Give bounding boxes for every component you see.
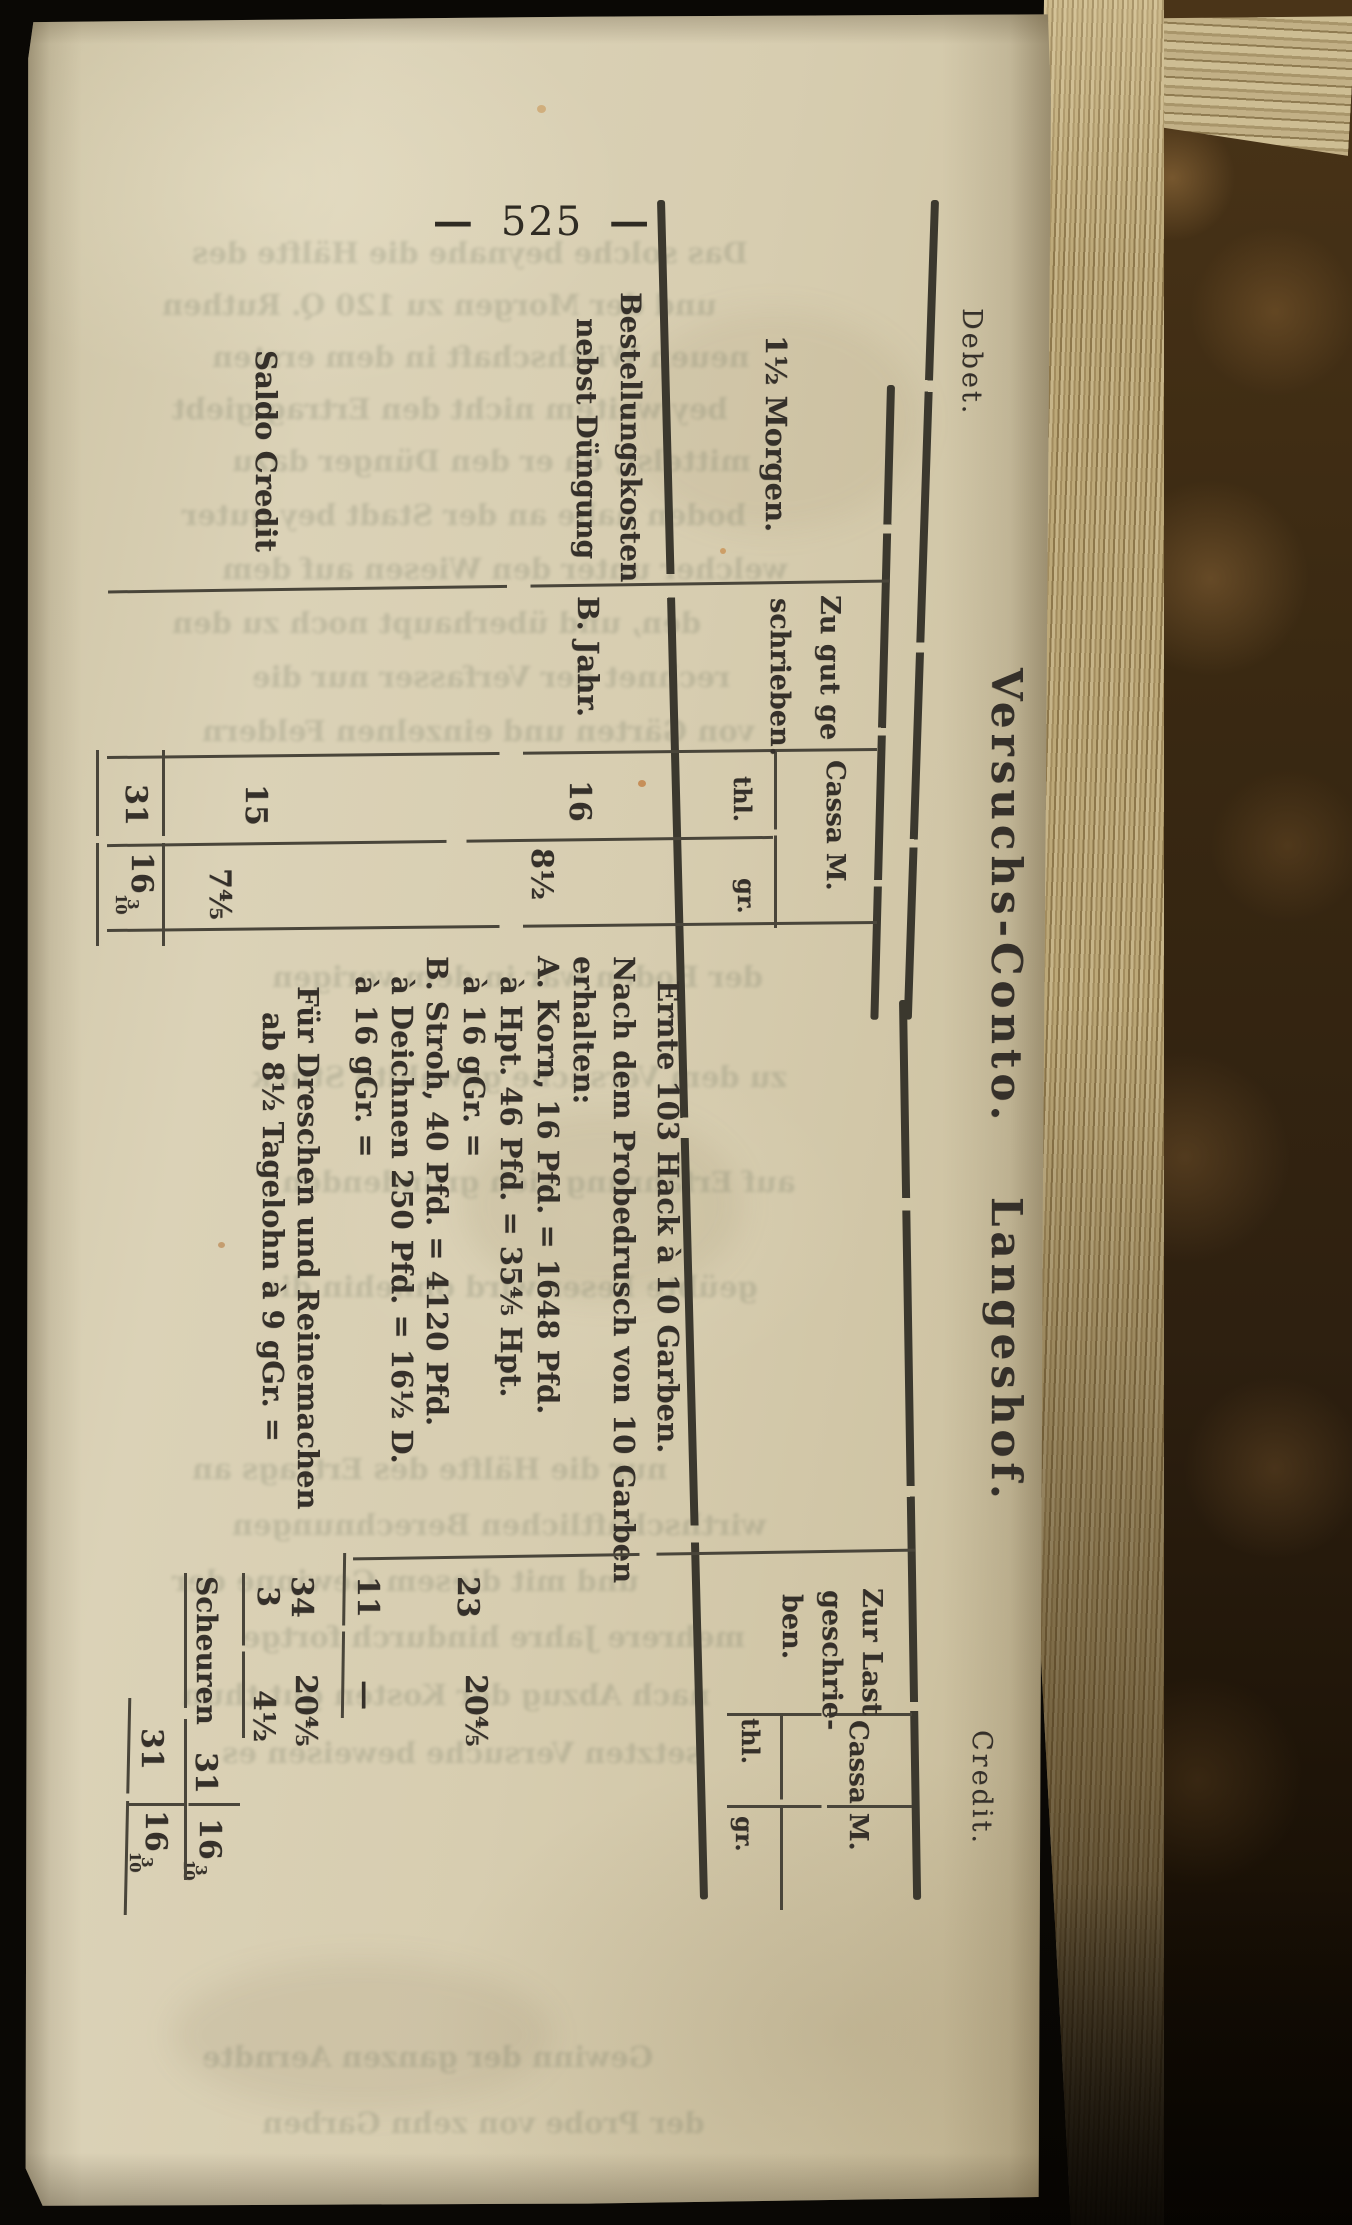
credit-deduction-thl: 3	[250, 1586, 285, 1607]
divider-money-right	[107, 921, 877, 932]
credit-total-gr-fraction: 310	[129, 1852, 153, 1873]
credit-result-gr: 16310	[183, 1818, 227, 1881]
closing-rule	[124, 1698, 132, 1915]
description-line: à Deichnen 250 Pfd. = 16½ D.	[385, 976, 419, 1464]
heavy-rule-top	[899, 1000, 921, 1900]
credit-total-thl: 31	[134, 1728, 169, 1770]
credit-entry-gr: —	[348, 1680, 383, 1710]
ledger-rotated-area: Debet. Versuchs-Conto. Langeshof. Credit…	[75, 200, 1045, 1900]
amount-gr: 8½	[524, 848, 559, 900]
credit-entry-gr: 20⅘	[458, 1674, 493, 1747]
credit-subtotal-gr: 20⅘	[288, 1674, 323, 1747]
description-line: A. Korn, 16 Pfd. = 1648 Pfd.	[531, 956, 565, 1414]
closing-rule	[96, 750, 99, 946]
bleedthrough-text: der Probe von zehn Garben	[262, 2106, 705, 2140]
heavy-rule-top-double	[870, 385, 895, 1020]
description-line: erhalten:	[567, 956, 601, 1104]
credit-cassa-header: Cassa M.	[843, 1720, 873, 1851]
description-line: Ernte 103 Hack à 10 Garben.	[651, 980, 685, 1453]
description-line: Nach dem Probedrusch von 10 Garben	[607, 956, 641, 1583]
paper-speck	[537, 105, 546, 113]
credit-result-gr-int: 16	[192, 1818, 227, 1860]
row-label: Bestellungskosten	[614, 292, 647, 582]
credit-label: Credit.	[966, 1730, 997, 1846]
debet-gr-header: gr.	[732, 878, 761, 914]
row-label: nebst Düngung	[570, 318, 603, 559]
bleedthrough-text: Gewinn der ganzen Aerndte	[202, 2040, 653, 2074]
description-line: à Hpt. 46 Pfd. = 35⅘ Hpt.	[494, 976, 528, 1397]
credit-charged-header-line3: ben.	[776, 1594, 807, 1659]
total-gr: 16310	[115, 852, 159, 915]
addition-rule	[162, 750, 165, 946]
amount-gr: 7⅘	[202, 868, 237, 920]
subtraction-rule	[242, 1573, 245, 1738]
credit-entry-thl: 11	[350, 1576, 385, 1618]
row-label: Saldo Credit	[249, 350, 283, 552]
addition-rule	[341, 1553, 346, 1718]
amount-thl: 15	[238, 784, 273, 826]
description-line: à 16 gGr. =	[457, 976, 491, 1158]
book-scan: Das solche beynahe die Hälfte des und de…	[0, 0, 1352, 2225]
description-line: B. Stroh, 40 Pfd. = 4120 Pfd.	[420, 956, 454, 1426]
total-thl: 31	[118, 784, 153, 826]
credit-thl-header: thl.	[736, 1718, 765, 1764]
heavy-rule-top	[904, 200, 939, 1020]
total-gr-fraction: 310	[115, 894, 139, 915]
ledger-title: Versuchs-Conto. Langeshof.	[982, 668, 1031, 1504]
debet-thl-header: thl.	[728, 776, 757, 822]
credit-charged-header-line1: Zur Last	[856, 1588, 887, 1715]
credit-gr-header: gr.	[730, 1816, 759, 1852]
divider-note-col	[107, 748, 877, 759]
deduction-line: ab 8½ Tagelohn à 9 gGr. =	[256, 1012, 290, 1442]
pre-total-rule	[184, 1573, 187, 1880]
credit-subtotal-thl: 34	[284, 1576, 319, 1618]
credit-charged-header-line2: geschrie-	[816, 1590, 847, 1730]
debet-cassa-header: Cassa M.	[820, 760, 850, 891]
debet-area-label: 1½ Morgen.	[759, 335, 793, 532]
credit-result-thl: 31	[188, 1752, 223, 1794]
bottom-right-shadow	[990, 1880, 1352, 2225]
amount-thl: 16	[562, 780, 597, 822]
paper-stain	[172, 1960, 552, 2110]
credit-total-gr-int: 16	[138, 1810, 173, 1852]
total-gr-int: 16	[124, 852, 159, 894]
debet-label: Debet.	[956, 308, 987, 416]
cassa-subrule	[774, 752, 777, 928]
debet-credited-header-line2: schrieben.	[764, 598, 795, 756]
deduction-line: Für Dreschen und Reinemachen	[291, 986, 325, 1510]
divider-label-col	[108, 580, 890, 594]
ledger-table: Debet. Versuchs-Conto. Langeshof. Credit…	[75, 200, 1045, 1900]
book-page: Das solche beynahe die Hälfte des und de…	[22, 10, 1052, 2208]
divider-credit-thl-gr	[727, 1805, 912, 1808]
credit-cassa-subrule	[780, 1713, 783, 1910]
description-line: à 16 gGr. =	[349, 976, 383, 1158]
debet-credited-header-line1: Zu gut ge	[814, 595, 845, 740]
credit-note: Scheuren	[190, 1576, 223, 1725]
credit-deduction-gr: 4½	[246, 1690, 281, 1742]
row-note: B. Jahr.	[571, 596, 605, 717]
credit-entry-thl: 23	[450, 1576, 485, 1618]
credit-total-gr: 16310	[129, 1810, 173, 1873]
